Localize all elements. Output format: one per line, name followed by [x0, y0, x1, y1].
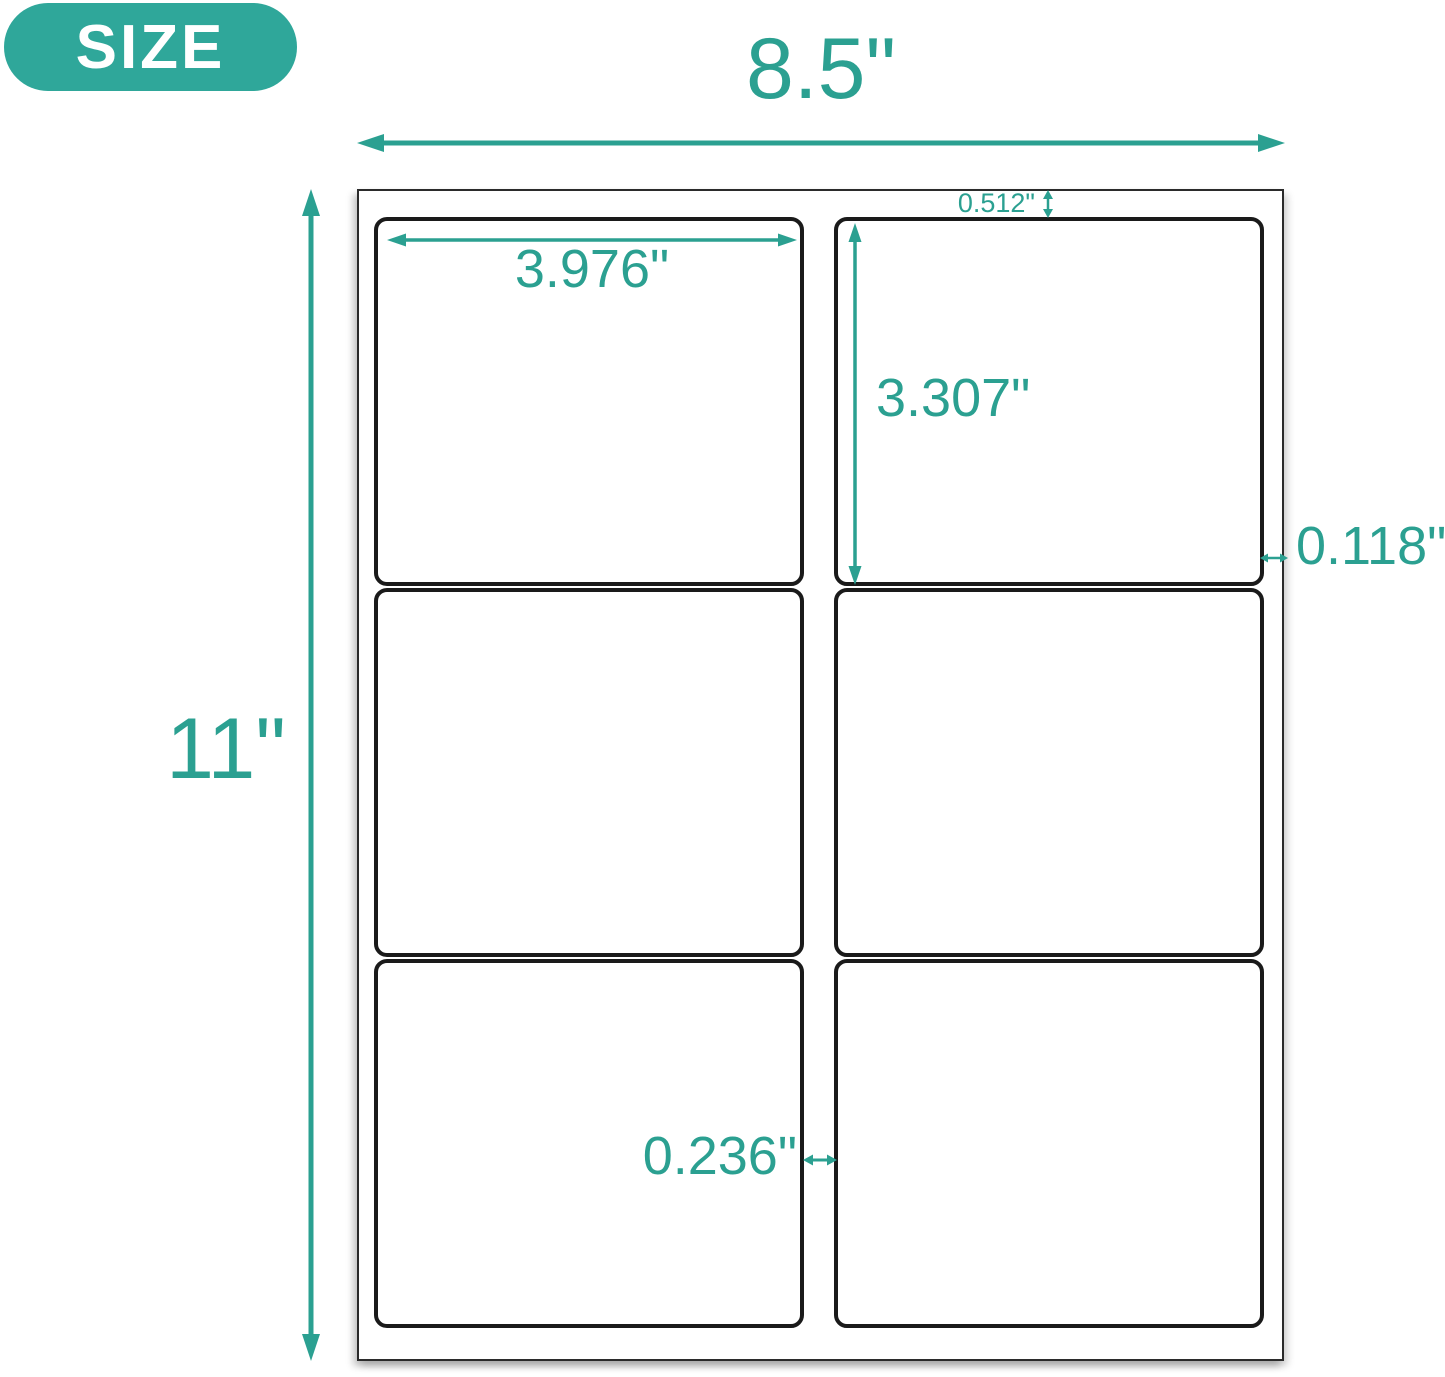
- sheet-width-label: 8.5": [746, 26, 896, 112]
- label-cell: [834, 959, 1264, 1328]
- top-margin-arrow: [1040, 190, 1056, 218]
- side-margin-arrow: [1260, 551, 1288, 565]
- label-height-arrow: [846, 223, 864, 585]
- sheet-height-arrow: [298, 189, 324, 1361]
- column-gap-label: 0.236": [643, 1129, 797, 1183]
- label-width-label: 3.976": [515, 242, 669, 296]
- side-margin-label: 0.118": [1296, 519, 1445, 573]
- label-height-label: 3.307": [876, 371, 1030, 425]
- top-margin-label: 0.512": [958, 190, 1035, 217]
- size-badge-label: SIZE: [76, 12, 226, 83]
- column-gap-arrow: [803, 1151, 837, 1169]
- label-cell: [374, 588, 804, 957]
- label-cell: [834, 588, 1264, 957]
- size-badge: SIZE: [4, 3, 297, 91]
- label-sheet: [357, 189, 1284, 1361]
- sheet-width-arrow: [357, 130, 1285, 156]
- sheet-height-label: 11": [166, 706, 286, 792]
- size-diagram: SIZE 8.5" 11" 3.976" 3.307": [0, 0, 1445, 1377]
